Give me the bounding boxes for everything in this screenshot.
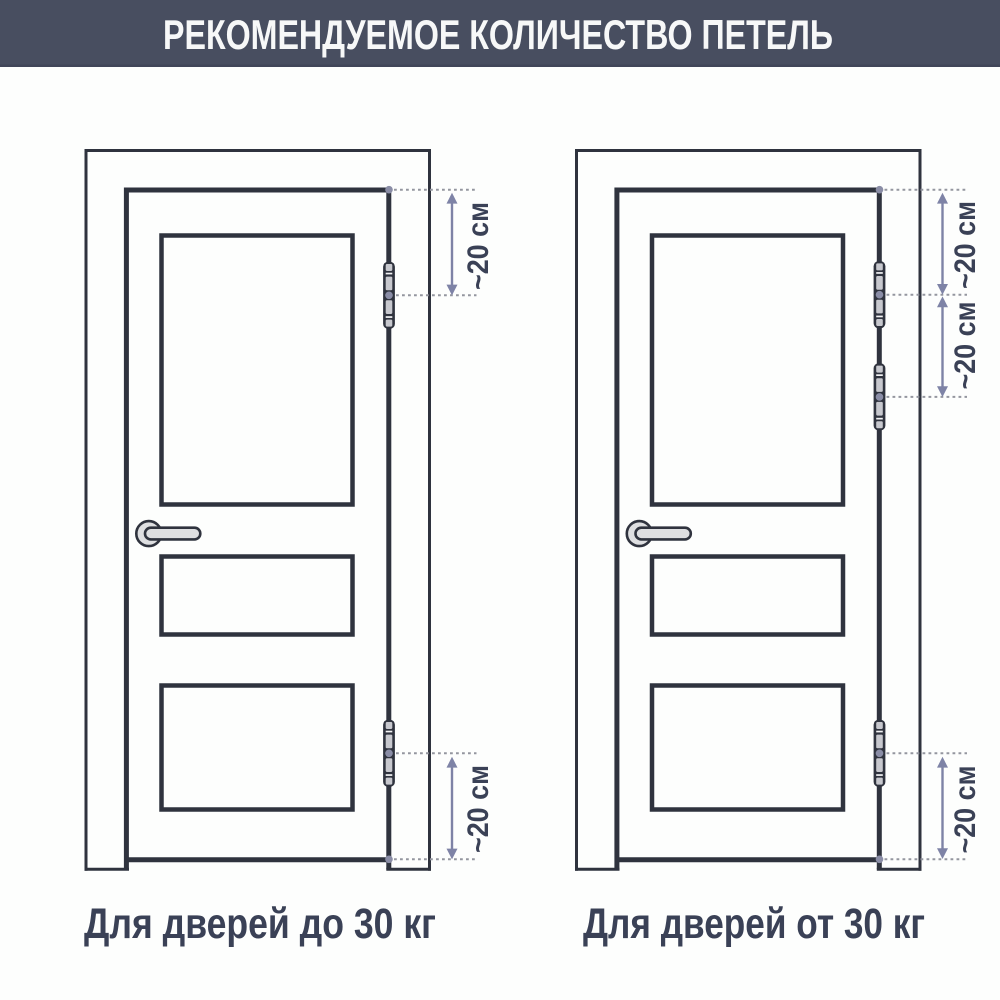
svg-text:РЕКОМЕНДУЕМОЕ КОЛИЧЕСТВО ПЕТЕЛ: РЕКОМЕНДУЕМОЕ КОЛИЧЕСТВО ПЕТЕЛЬ bbox=[163, 11, 833, 58]
svg-text:Для дверей от 30 кг: Для дверей от 30 кг bbox=[583, 900, 925, 948]
svg-text:~20 см: ~20 см bbox=[949, 766, 982, 854]
svg-text:~20 см: ~20 см bbox=[462, 765, 495, 853]
svg-text:~20 см: ~20 см bbox=[949, 201, 982, 289]
svg-text:Для дверей до 30 кг: Для дверей до 30 кг bbox=[84, 900, 436, 948]
svg-text:~20 см: ~20 см bbox=[949, 302, 982, 390]
svg-text:~20 см: ~20 см bbox=[462, 202, 495, 290]
